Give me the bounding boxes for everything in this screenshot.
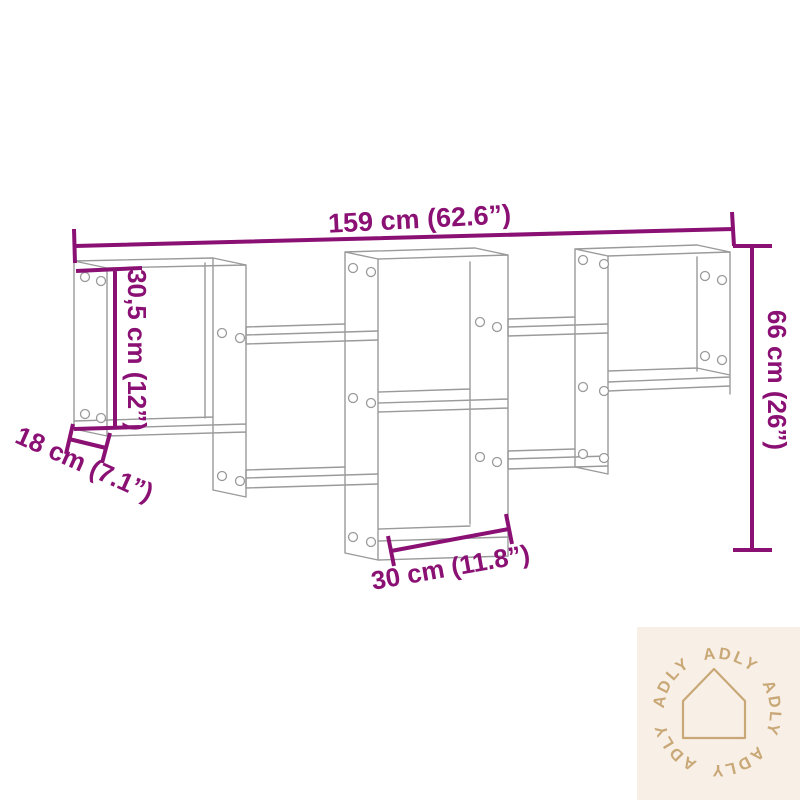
dimension-overall-height: 66 cm (26”) — [733, 246, 792, 550]
right-shelves-outline — [508, 317, 608, 469]
dimension-compartment-width-label: 30 cm (11.8”) — [369, 538, 532, 595]
dimension-depth-label: 18 cm (7.1”) — [11, 420, 158, 507]
brand-watermark: ADLY ADLY ADLY ADLY ADLY — [637, 627, 800, 800]
dimension-compartment-height: 30,5 cm (12”) — [74, 268, 152, 431]
diagram-canvas: 159 cm (62.6”) 66 cm (26”) 30,5 cm (12”)… — [0, 0, 800, 800]
dimension-diagram-page: 159 cm (62.6”) 66 cm (26”) 30,5 cm (12”)… — [0, 0, 800, 800]
dimension-compartment-height-label: 30,5 cm (12”) — [122, 269, 152, 431]
cam-hole-marks — [81, 256, 727, 547]
dimension-overall-width: 159 cm (62.6”) — [74, 199, 734, 263]
wall-shelf-drawing — [74, 245, 730, 560]
dimension-overall-width-label: 159 cm (62.6”) — [327, 199, 511, 239]
left-shelves-outline — [246, 324, 378, 488]
dimension-depth: 18 cm (7.1”) — [11, 420, 158, 507]
dimension-overall-height-label: 66 cm (26”) — [762, 310, 792, 450]
